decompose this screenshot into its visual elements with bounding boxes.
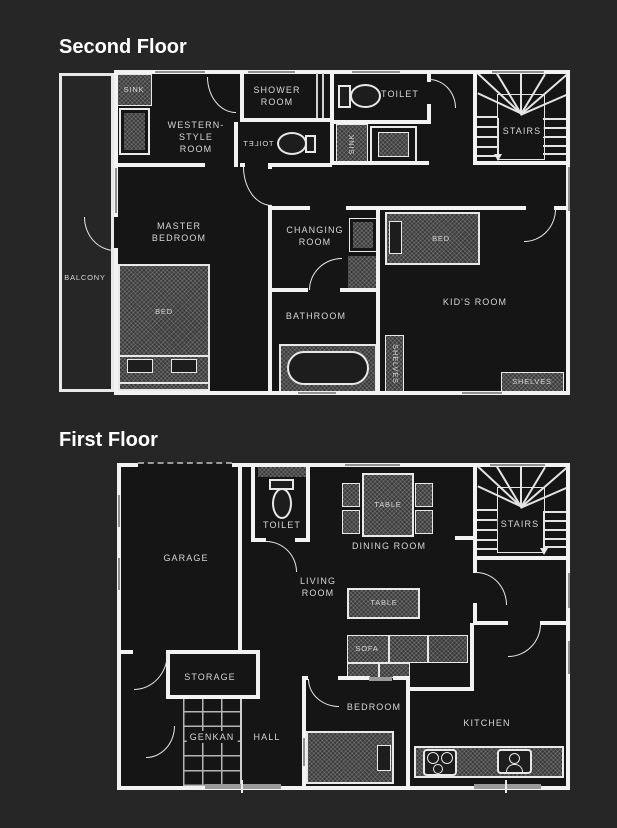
toilet-bowl-icon bbox=[277, 132, 307, 155]
stove-burner-icon bbox=[427, 752, 439, 764]
stairs-tread bbox=[543, 520, 566, 522]
window-marker bbox=[298, 392, 336, 394]
bathtub bbox=[279, 344, 377, 394]
washing-machine bbox=[370, 126, 417, 163]
window-marker bbox=[568, 573, 570, 608]
wall-segment bbox=[338, 676, 370, 680]
garage-door-dashed bbox=[138, 462, 232, 464]
room-label-dining-room: DINING ROOM bbox=[352, 540, 426, 552]
bed-line bbox=[118, 355, 210, 357]
wall-segment bbox=[346, 206, 378, 210]
wall-segment bbox=[473, 556, 570, 560]
room-label-genkan: GENKAN bbox=[187, 731, 238, 743]
stairs-arrow-icon bbox=[540, 548, 548, 555]
wall-segment bbox=[473, 463, 477, 558]
toilet-tank-icon bbox=[305, 135, 316, 153]
stairs-tread bbox=[477, 509, 497, 511]
room-label-stairs: STAIRS bbox=[500, 125, 544, 137]
room-label-stairs-1f: STAIRS bbox=[498, 518, 542, 530]
bedroom-sliding-door bbox=[369, 677, 392, 681]
window-marker bbox=[568, 167, 570, 211]
wall-segment bbox=[268, 288, 308, 292]
window-marker bbox=[248, 71, 295, 73]
label-bed: BED bbox=[155, 307, 173, 317]
dining-chair bbox=[342, 483, 360, 507]
wall-segment bbox=[340, 288, 380, 292]
changing-room-cabinet bbox=[348, 256, 377, 288]
stairs-tread bbox=[543, 529, 566, 531]
stairs-tread bbox=[477, 126, 497, 128]
room-label-kids-room: KID'S ROOM bbox=[443, 296, 507, 308]
dining-chair bbox=[415, 483, 433, 507]
stairs-fan-line bbox=[520, 467, 522, 507]
stairs-tread bbox=[543, 127, 566, 129]
wall-segment bbox=[470, 623, 474, 691]
dining-chair bbox=[342, 510, 360, 534]
wall-segment bbox=[473, 70, 477, 165]
window-marker bbox=[492, 71, 544, 73]
stairs-tread bbox=[477, 116, 497, 118]
wall-segment bbox=[306, 463, 310, 540]
stove-burner-icon bbox=[441, 752, 453, 764]
stairs-tread bbox=[477, 519, 497, 521]
sofa-divider bbox=[427, 635, 429, 663]
sofa-divider bbox=[388, 635, 390, 663]
wall-segment bbox=[268, 206, 310, 210]
wall-segment bbox=[295, 538, 310, 542]
stairs-arrow-icon bbox=[494, 154, 502, 161]
vanity-basin bbox=[353, 222, 373, 248]
wall-segment bbox=[268, 205, 272, 395]
stairs-arrow-line bbox=[497, 118, 499, 154]
wall-segment bbox=[240, 118, 334, 122]
room-label-sink-vertical: SINK bbox=[347, 134, 357, 155]
slider-rail bbox=[322, 73, 324, 118]
wall-segment bbox=[251, 463, 255, 540]
window-marker bbox=[155, 71, 205, 73]
wall-segment bbox=[240, 70, 244, 122]
wall-segment bbox=[473, 603, 477, 623]
bed-line bbox=[118, 382, 210, 384]
room-label-shower-room: SHOWER ROOM bbox=[253, 84, 300, 108]
wall-segment bbox=[251, 538, 266, 542]
wall-segment bbox=[167, 650, 258, 654]
kitchen-door-tick bbox=[505, 780, 507, 793]
window-marker bbox=[115, 168, 117, 213]
wall-segment bbox=[114, 163, 205, 167]
wall-segment bbox=[117, 650, 133, 654]
room-label-western-style-room: WESTERN- STYLE ROOM bbox=[168, 119, 225, 155]
wall-segment bbox=[473, 556, 477, 573]
wall-segment bbox=[256, 650, 260, 699]
stairs-tread bbox=[477, 548, 497, 550]
wall-segment bbox=[540, 621, 570, 625]
wall-segment bbox=[566, 70, 570, 395]
front-door bbox=[205, 784, 281, 789]
sofa-divider bbox=[378, 663, 380, 678]
room-label-kitchen: KITCHEN bbox=[463, 717, 510, 729]
wall-segment bbox=[455, 536, 473, 540]
wall-segment bbox=[166, 695, 258, 699]
label-shelves-vertical: SHELVES bbox=[390, 344, 400, 384]
stairs-tread bbox=[543, 153, 566, 155]
toilet-bowl-icon bbox=[350, 84, 381, 108]
stairs-tread bbox=[477, 529, 497, 531]
wall-segment bbox=[473, 621, 508, 625]
second-floor-title: Second Floor bbox=[59, 36, 187, 59]
window-marker bbox=[352, 71, 400, 73]
wall-segment bbox=[333, 120, 429, 124]
window-marker bbox=[303, 738, 305, 766]
slider-rail bbox=[316, 73, 318, 118]
faucet-icon bbox=[509, 753, 520, 764]
window-marker bbox=[345, 464, 400, 466]
kitchen-sliding-door bbox=[474, 784, 541, 789]
wall-segment bbox=[271, 163, 332, 167]
stairs-tread bbox=[543, 136, 566, 138]
stairs-tread bbox=[543, 118, 566, 120]
stairs-tread bbox=[477, 146, 497, 148]
floor-plan-page: Second Floor First Floor bbox=[0, 0, 617, 828]
room-label-balcony: BALCONY bbox=[64, 273, 105, 283]
stairs-arrow-line bbox=[543, 511, 545, 548]
wall-segment bbox=[406, 676, 410, 790]
room-label-toilet-1f: TOILET bbox=[263, 519, 301, 531]
stove-burner-icon bbox=[433, 764, 443, 774]
label-bed: BED bbox=[432, 234, 450, 244]
room-label-living-room: LIVING ROOM bbox=[300, 575, 336, 599]
washing-machine-drum bbox=[378, 132, 409, 157]
pillow bbox=[171, 359, 197, 373]
changing-room-vanity bbox=[349, 218, 377, 252]
wall-segment bbox=[333, 161, 429, 165]
wall-segment bbox=[234, 122, 238, 167]
toilet-shelf bbox=[258, 467, 307, 477]
toilet-bowl-icon bbox=[272, 488, 292, 519]
wall-segment bbox=[566, 463, 570, 790]
slider-rail bbox=[240, 699, 242, 786]
window-marker bbox=[118, 558, 120, 590]
window-marker bbox=[462, 392, 502, 394]
room-label-bathroom: BATHROOM bbox=[286, 310, 346, 322]
wall-segment bbox=[114, 248, 118, 395]
pillow bbox=[127, 359, 153, 373]
room-label-toilet: TOILET bbox=[381, 88, 419, 100]
window-marker bbox=[118, 495, 120, 527]
front-door-tick bbox=[241, 780, 243, 793]
sink-basin bbox=[119, 108, 150, 155]
first-floor-title: First Floor bbox=[59, 429, 158, 452]
dining-chair bbox=[415, 510, 433, 534]
room-label-master-bedroom: MASTER BEDROOM bbox=[152, 220, 206, 244]
room-label-toilet-mirrored: TOILET bbox=[243, 139, 274, 149]
stairs-tread bbox=[477, 136, 497, 138]
stairs-fan-line bbox=[520, 74, 522, 114]
stairs-tread bbox=[543, 538, 566, 540]
label-sofa: SOFA bbox=[355, 644, 378, 654]
wall-segment bbox=[406, 687, 474, 691]
wall-segment bbox=[376, 206, 526, 210]
room-label-bedroom: BEDROOM bbox=[347, 701, 401, 713]
stairs-tread bbox=[477, 539, 497, 541]
pillow bbox=[389, 221, 402, 254]
wall-segment bbox=[238, 463, 242, 652]
pillow bbox=[377, 745, 391, 771]
stairs-tread bbox=[543, 145, 566, 147]
room-label-storage: STORAGE bbox=[184, 671, 236, 683]
faucet-icon bbox=[506, 764, 523, 772]
wall-segment bbox=[376, 206, 380, 395]
label-dining-table: TABLE bbox=[374, 500, 401, 510]
room-label-garage: GARAGE bbox=[163, 552, 208, 564]
window-marker bbox=[568, 641, 570, 674]
bathtub-basin bbox=[287, 351, 369, 385]
label-shelves: SHELVES bbox=[512, 377, 552, 387]
label-living-table: TABLE bbox=[370, 598, 397, 608]
room-label-changing-room: CHANGING ROOM bbox=[286, 224, 343, 248]
room-label-sink: SINK bbox=[124, 85, 145, 95]
wall-segment bbox=[473, 161, 570, 165]
stairs-tread bbox=[543, 511, 566, 513]
room-label-hall: HALL bbox=[254, 731, 281, 743]
sink-basin-inner bbox=[124, 113, 145, 150]
window-marker bbox=[490, 464, 545, 466]
wall-segment bbox=[302, 676, 306, 790]
